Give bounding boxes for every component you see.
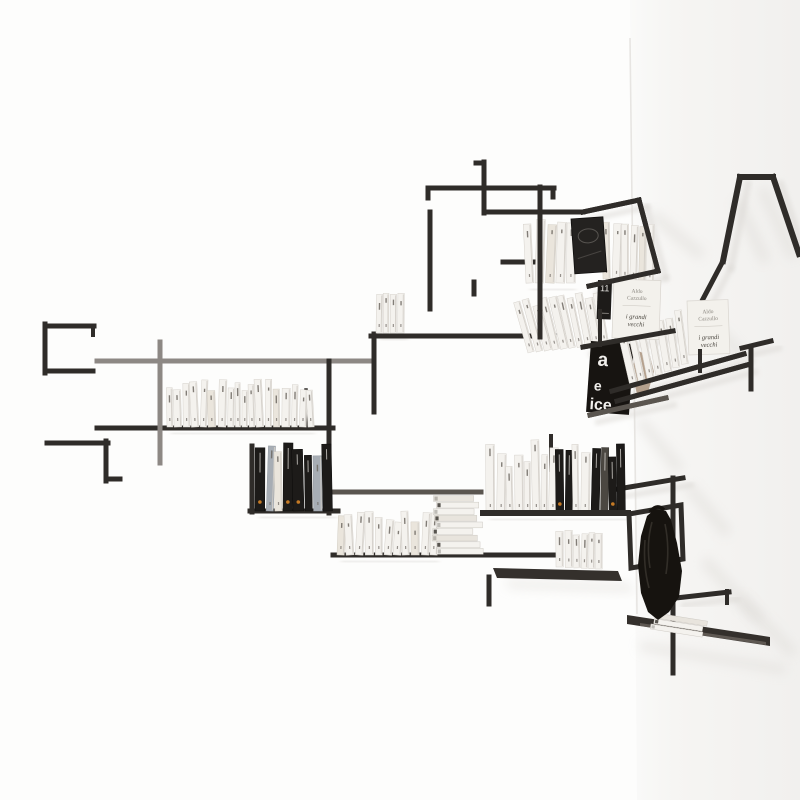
book-spine (531, 440, 541, 513)
book-spine (621, 224, 628, 281)
book-spine (556, 531, 564, 567)
cover-author: Cazzullo (698, 316, 718, 323)
book-spine (242, 391, 248, 427)
book-spine (292, 449, 304, 511)
book-spine (596, 533, 603, 569)
book-spine (173, 390, 182, 427)
book-spine (365, 512, 374, 555)
book-spine (565, 450, 573, 513)
book-spine (282, 388, 291, 427)
book-spine (383, 293, 389, 333)
cover-title: i grandi (626, 313, 647, 321)
book-spine (601, 448, 609, 514)
book-spine (616, 444, 625, 513)
dark-album-cover (571, 217, 607, 274)
book-spine (292, 385, 299, 427)
cover-title: vecchi (627, 321, 644, 329)
book-spine (274, 452, 282, 511)
bookshelf-scene: aeice11AldoCazzulloi grandivecchiAldoCaz… (0, 0, 800, 800)
book-spine (390, 294, 396, 333)
books-shadow (259, 517, 337, 518)
books-shadow (530, 289, 576, 290)
books-shadow (380, 339, 408, 340)
cover-author: Cazzullo (627, 295, 647, 302)
cover-title: vecchi (701, 341, 718, 349)
book-spine (248, 384, 255, 427)
book-spine (255, 448, 265, 511)
poster-letter: a (597, 350, 609, 372)
book-cover: AldoCazzulloi grandivecchi (612, 279, 661, 340)
book-spine (313, 456, 322, 511)
book-spine (207, 391, 216, 428)
flat-book-stack (432, 496, 483, 555)
book-spine (322, 444, 333, 511)
book-spine (556, 222, 567, 283)
books-shadow (171, 433, 315, 434)
book-spine (608, 457, 617, 513)
books-shadow (560, 519, 628, 520)
book-spine (411, 522, 419, 555)
cover-author: Aldo (631, 289, 642, 295)
book-spine (497, 454, 507, 513)
book-spine (265, 379, 271, 427)
book-spine (581, 534, 588, 569)
cover-title: i grandi (698, 334, 719, 342)
book-spine (555, 449, 564, 513)
book-cover: AldoCazzulloi grandivecchi (687, 300, 730, 355)
book-spine (573, 535, 580, 568)
book-spine (304, 455, 312, 511)
book-spine (589, 533, 595, 569)
book-spine (506, 466, 514, 513)
book-spine (398, 293, 405, 333)
book-spine (218, 380, 227, 427)
book-spine (581, 452, 591, 513)
book-spine (200, 380, 208, 427)
book-spine (235, 383, 241, 427)
book-spine (591, 448, 601, 513)
poster-letter: e (593, 377, 602, 394)
cover-author: Aldo (702, 309, 713, 315)
books-shadow (341, 561, 439, 562)
book-spine (486, 444, 495, 513)
book-spine (183, 383, 190, 427)
book-spine (273, 389, 280, 427)
books-shadow (490, 519, 559, 520)
book-spine (612, 224, 622, 280)
book-spine (514, 455, 523, 513)
book-spine (541, 455, 548, 513)
book-spine (166, 388, 172, 427)
book-spine (401, 511, 410, 555)
book-spine (524, 462, 531, 513)
book-spine (572, 444, 579, 513)
book-spine (375, 517, 382, 555)
product-photo: aeice11AldoCazzulloi grandivecchiAldoCaz… (0, 0, 800, 800)
book-spine (565, 530, 573, 567)
book-spine (228, 388, 235, 427)
book-spine (421, 513, 430, 556)
book-spine (376, 294, 383, 333)
